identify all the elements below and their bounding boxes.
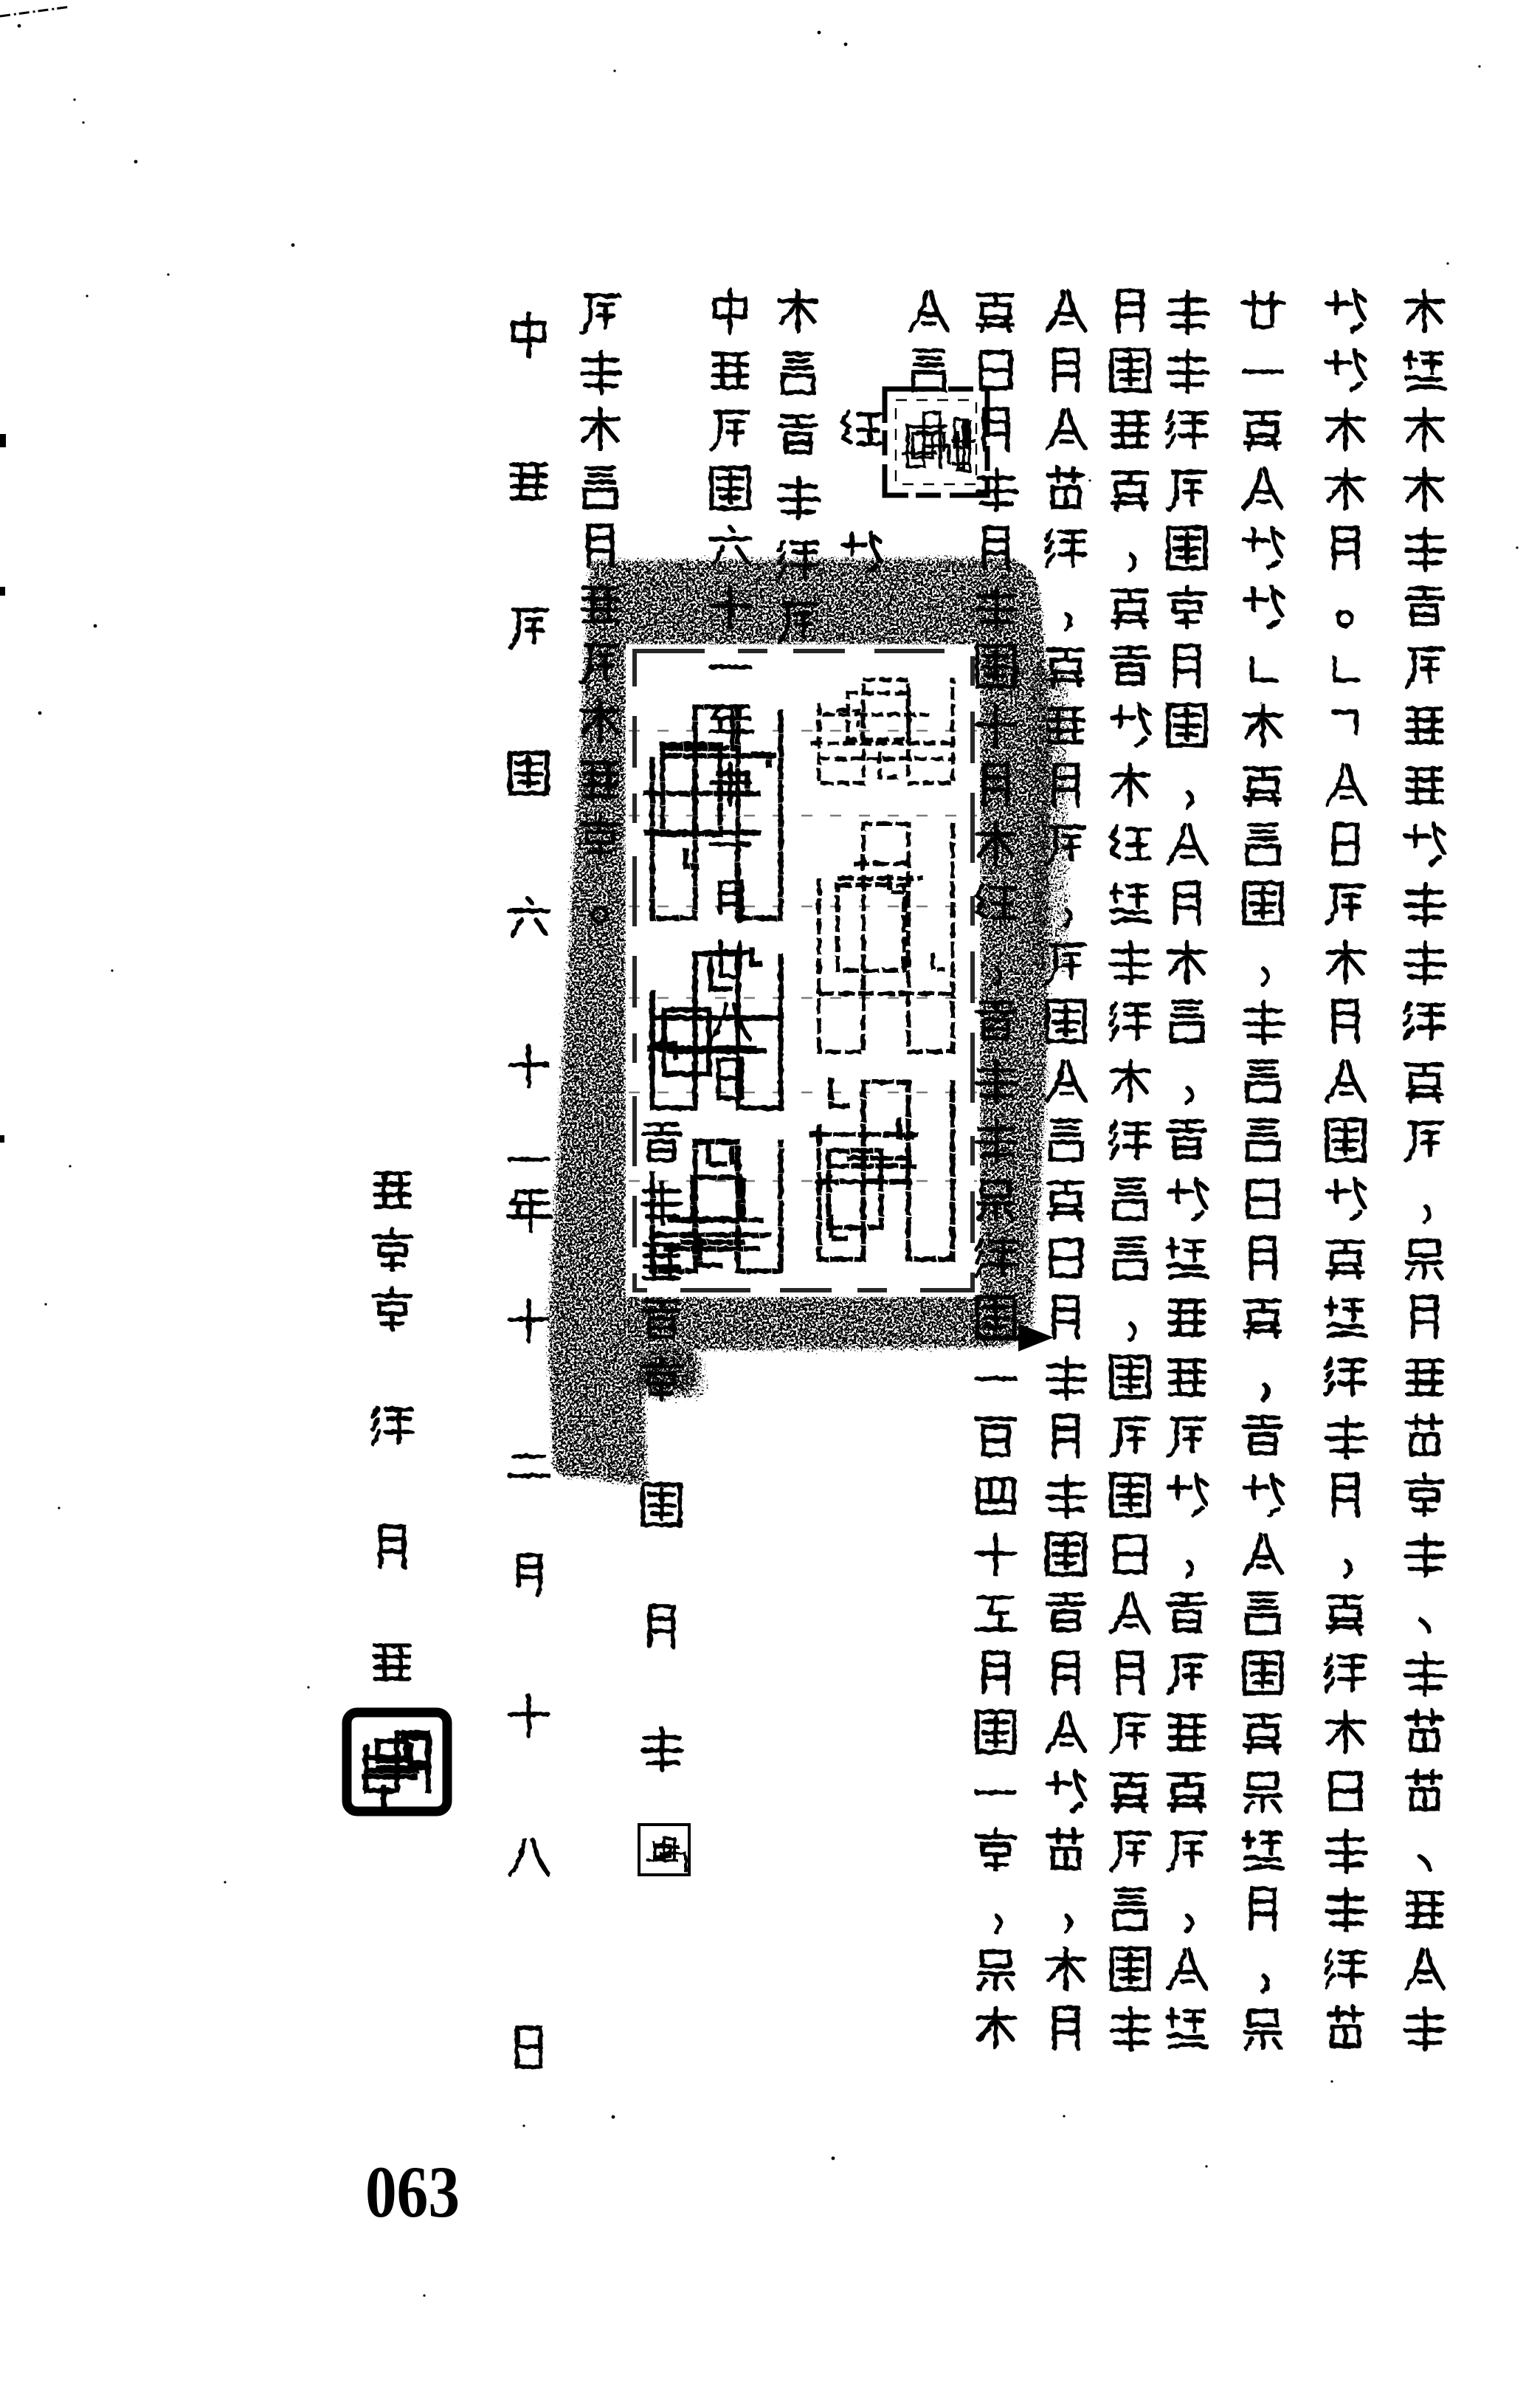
- svg-text:063: 063: [365, 2151, 460, 2233]
